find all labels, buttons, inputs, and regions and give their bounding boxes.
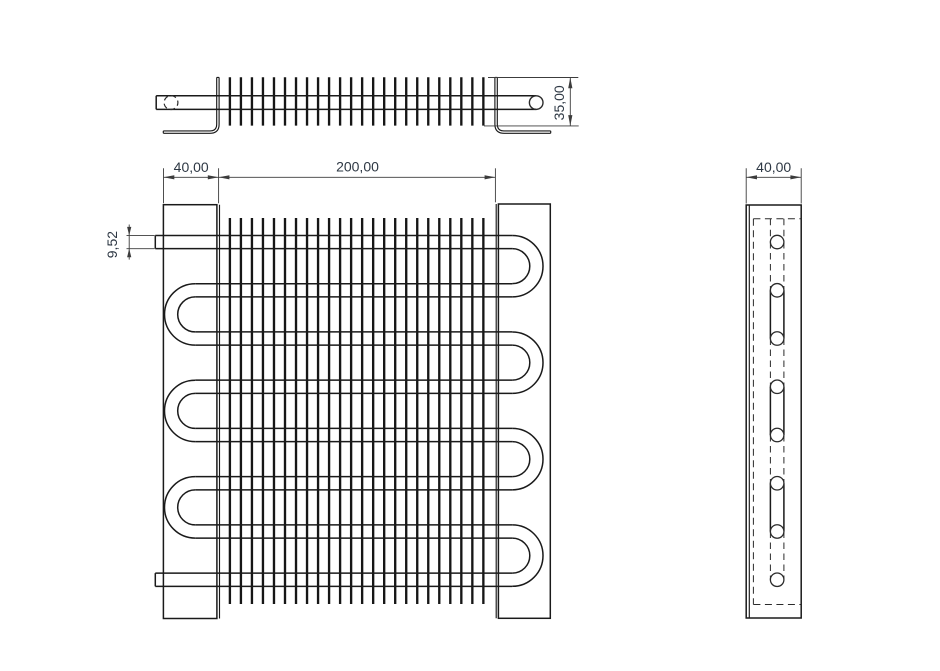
- svg-text:35,00: 35,00: [551, 85, 567, 120]
- svg-text:9,52: 9,52: [104, 231, 120, 258]
- svg-text:40,00: 40,00: [174, 159, 209, 175]
- svg-text:200,00: 200,00: [336, 158, 379, 174]
- svg-text:40,00: 40,00: [756, 159, 791, 175]
